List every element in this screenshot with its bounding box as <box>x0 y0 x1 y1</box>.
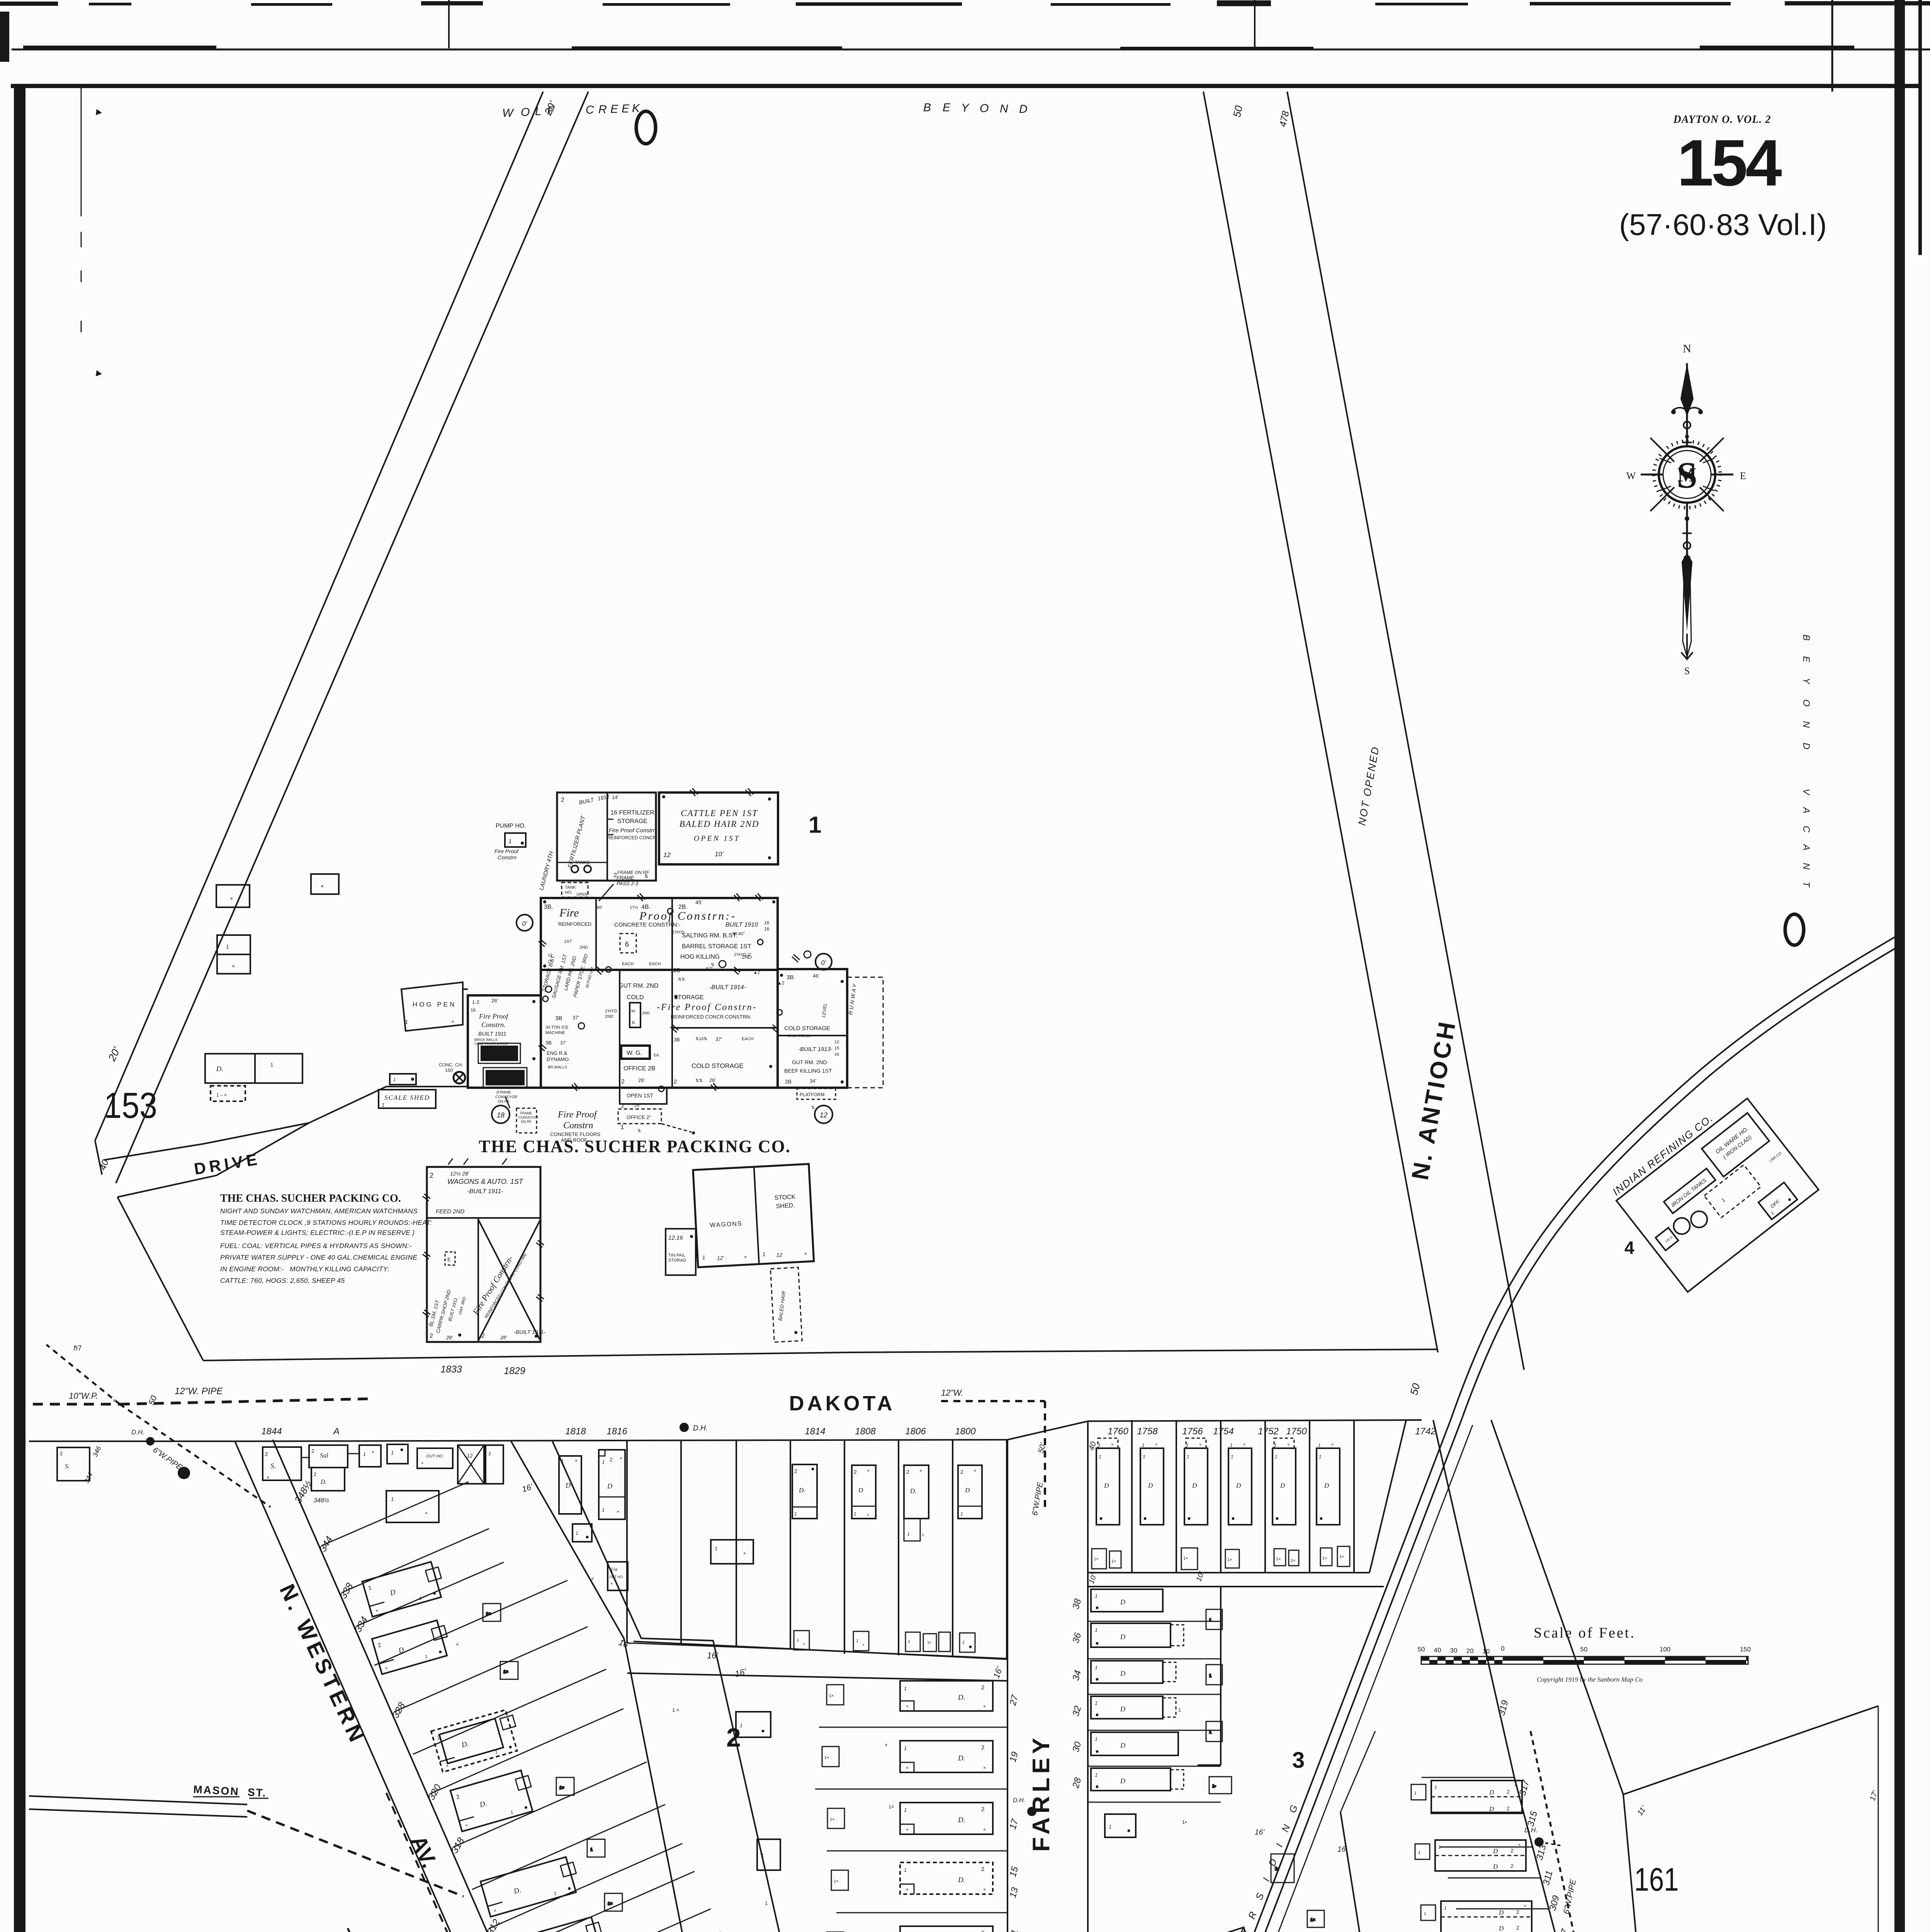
svg-text:2: 2 <box>314 1471 316 1477</box>
svg-text:D.: D. <box>958 1754 965 1762</box>
svg-text:1•: 1• <box>1212 1784 1216 1789</box>
svg-text:(57·60·83 Vol.I): (57·60·83 Vol.I) <box>1619 207 1827 241</box>
svg-text:O: O <box>521 106 530 119</box>
svg-text:ON RF.: ON RF. <box>498 1100 510 1104</box>
svg-text:D.: D. <box>910 1487 917 1495</box>
svg-text:1: 1 <box>1178 1707 1181 1713</box>
svg-text:1: 1 <box>1095 1627 1098 1633</box>
svg-text:3B.60°: 3B.60° <box>732 932 745 936</box>
svg-text:10”W.P.: 10”W.P. <box>69 1391 98 1401</box>
svg-text:46’: 46’ <box>813 973 819 979</box>
svg-text:1818: 1818 <box>565 1426 586 1437</box>
svg-text:2'HYD: 2'HYD <box>605 1009 617 1014</box>
svg-text:E: E <box>447 1257 451 1262</box>
svg-text:1758: 1758 <box>1137 1426 1158 1437</box>
svg-text:W: W <box>502 107 514 119</box>
svg-text:1×: 1× <box>559 1786 564 1790</box>
svg-text:CONVEYOR: CONVEYOR <box>518 1116 539 1119</box>
svg-text:2’HYD.2°: 2’HYD.2° <box>734 952 751 957</box>
svg-text:PUMP HO.: PUMP HO. <box>496 823 526 829</box>
svg-text:BEEF KILLING 1ST: BEEF KILLING 1ST <box>784 1068 832 1074</box>
svg-text:12: 12 <box>548 953 552 957</box>
svg-text:×: × <box>922 1533 924 1537</box>
svg-text:1806: 1806 <box>905 1426 926 1437</box>
svg-text:0’: 0’ <box>821 959 826 966</box>
svg-text:ENG R.&: ENG R.& <box>547 1050 567 1056</box>
svg-text:1: 1 <box>904 1745 907 1751</box>
svg-text:V: V <box>1801 789 1811 796</box>
svg-text:ON RF.: ON RF. <box>521 1120 532 1124</box>
svg-text:1: 1 <box>1143 1454 1145 1459</box>
svg-text:E: E <box>610 103 618 116</box>
svg-text:2: 2 <box>981 1684 984 1691</box>
svg-text:17½: 17½ <box>630 905 638 910</box>
svg-text:1: 1 <box>590 1847 593 1852</box>
svg-text:GUT RM. 2ND: GUT RM. 2ND <box>618 983 659 989</box>
svg-text:D.: D. <box>958 1876 965 1884</box>
svg-text:3B: 3B <box>555 1015 562 1022</box>
svg-text:W. G.: W. G. <box>627 1050 642 1056</box>
svg-text:BARREL STORAGE 1ST: BARREL STORAGE 1ST <box>682 943 751 950</box>
svg-text:D: D <box>858 1486 863 1494</box>
svg-text:50: 50 <box>1231 105 1245 119</box>
svg-text:B: B <box>923 101 931 114</box>
svg-text:×: × <box>456 1641 459 1647</box>
svg-text:1: 1 <box>1095 1736 1098 1742</box>
svg-text:FARLEY: FARLEY <box>1028 1734 1055 1852</box>
svg-text:2: 2 <box>610 1456 613 1463</box>
svg-text:×: × <box>906 1704 909 1709</box>
svg-text:26’: 26’ <box>709 1077 716 1083</box>
svg-text:×: × <box>1199 1442 1201 1447</box>
svg-text:2ND: 2ND <box>579 945 588 950</box>
svg-text:12: 12 <box>467 1452 473 1459</box>
svg-text:BUILT 1910: BUILT 1910 <box>725 922 758 928</box>
svg-text:N: N <box>1801 721 1811 728</box>
svg-text:⇅16⇅: ⇅16⇅ <box>695 1037 707 1041</box>
svg-text:16’: 16’ <box>707 1651 719 1660</box>
svg-text:TIN PAIL: TIN PAIL <box>668 1253 685 1258</box>
svg-text:OPEN: OPEN <box>576 893 587 897</box>
svg-text:1: 1 <box>576 1531 578 1536</box>
svg-text:Constrn: Constrn <box>563 1121 593 1131</box>
svg-text:E: E <box>1801 656 1811 663</box>
svg-text:⇅: ⇅ <box>811 1105 815 1110</box>
svg-text:×: × <box>1243 1442 1245 1447</box>
svg-text:D: D <box>965 1486 970 1494</box>
svg-text:16: 16 <box>764 920 770 925</box>
svg-text:×: × <box>1111 1442 1113 1447</box>
svg-text:×: × <box>867 1513 869 1517</box>
svg-text:E: E <box>943 101 951 114</box>
svg-text:1×: 1× <box>1310 1918 1315 1922</box>
svg-text:1×: 1× <box>1276 1557 1281 1561</box>
svg-text:×: × <box>885 1742 888 1748</box>
svg-text:2: 2 <box>430 1333 433 1339</box>
svg-text:D: D <box>1493 1863 1498 1870</box>
svg-text:1×: 1× <box>1111 1559 1116 1564</box>
svg-text:1: 1 <box>856 1639 858 1643</box>
svg-text:EA.: EA. <box>654 1053 660 1058</box>
svg-text:▲2: ▲2 <box>753 970 760 975</box>
svg-text:16’: 16’ <box>1255 1828 1265 1837</box>
svg-text:1×: 1× <box>486 1612 491 1616</box>
svg-text:×: × <box>451 1019 454 1024</box>
svg-text:2: 2 <box>854 1469 857 1475</box>
svg-text:12: 12 <box>776 1252 783 1258</box>
svg-text:16: 16 <box>764 926 770 932</box>
svg-text:1: 1 <box>1318 1442 1321 1448</box>
svg-text:2ND: 2ND <box>605 1014 613 1019</box>
svg-text:D: D <box>1498 1925 1504 1932</box>
svg-text:1×: 1× <box>889 1804 894 1810</box>
svg-text:S.: S. <box>270 1462 276 1470</box>
svg-text:CATTLE PEN 1ST: CATTLE PEN 1ST <box>681 808 758 818</box>
svg-text:14’: 14’ <box>612 794 618 800</box>
svg-text:37’: 37’ <box>573 1015 579 1020</box>
svg-text:1: 1 <box>1095 1772 1098 1778</box>
svg-text:3B.: 3B. <box>787 974 795 981</box>
svg-text:1816: 1816 <box>607 1426 627 1437</box>
svg-text:COLD STORAGE: COLD STORAGE <box>691 1062 744 1070</box>
svg-text:THE CHAS. SUCHER PACKING CO.: THE CHAS. SUCHER PACKING CO. <box>220 1192 401 1204</box>
svg-text:Fire Proof: Fire Proof <box>494 848 519 854</box>
svg-text:D: D <box>1493 1847 1498 1855</box>
svg-text:12: 12 <box>820 1111 827 1119</box>
svg-text:REINFORCED CONCR.CONSTRN.: REINFORCED CONCR.CONSTRN. <box>671 1014 751 1020</box>
svg-text:2: 2 <box>621 1102 624 1109</box>
svg-text:Fire Proof: Fire Proof <box>557 1110 598 1120</box>
svg-text:2'HYD: 2'HYD <box>672 930 684 935</box>
svg-text:2: 2 <box>1510 1847 1514 1854</box>
svg-text:BR.WALLS: BR.WALLS <box>548 1065 567 1070</box>
svg-text:1: 1 <box>797 1638 799 1643</box>
svg-text:×: × <box>744 1254 747 1260</box>
svg-text:153: 153 <box>104 1085 157 1126</box>
svg-text:×: × <box>575 1458 578 1463</box>
svg-text:34’: 34’ <box>810 1078 816 1084</box>
svg-text:×: × <box>230 895 233 901</box>
svg-text:16 FERTILIZER: 16 FERTILIZER <box>610 810 654 816</box>
svg-text:D: D <box>1236 1482 1241 1489</box>
svg-text:Fire: Fire <box>559 906 579 919</box>
svg-text:×: × <box>1287 1442 1289 1447</box>
svg-text:-Fire Proof Constrn-: -Fire Proof Constrn- <box>657 1002 757 1012</box>
svg-text:WAGONS & AUTO. 1ST: WAGONS & AUTO. 1ST <box>447 1178 524 1185</box>
svg-text:0: 0 <box>1501 1645 1504 1652</box>
svg-text:50: 50 <box>1580 1646 1588 1653</box>
svg-text:1750: 1750 <box>1286 1426 1307 1437</box>
svg-text:T: T <box>1801 881 1811 888</box>
svg-text:A: A <box>333 1426 340 1437</box>
svg-text:2: 2 <box>1510 1863 1514 1869</box>
svg-text:D: D <box>1192 1482 1197 1489</box>
svg-text:×: × <box>1331 1442 1334 1447</box>
svg-text:2: 2 <box>430 1172 433 1179</box>
svg-text:↑26’: ↑26’ <box>632 1102 641 1108</box>
svg-text:N: N <box>1683 342 1691 355</box>
svg-text:1: 1 <box>1231 1454 1233 1459</box>
svg-text:E: E <box>1740 470 1746 481</box>
svg-text:×: × <box>1155 1442 1157 1447</box>
svg-text:×: × <box>1518 1843 1521 1847</box>
svg-text:150’: 150’ <box>445 1068 454 1073</box>
svg-text:1: 1 <box>1434 1785 1437 1790</box>
svg-text:×: × <box>906 1887 909 1892</box>
svg-text:⇅⇅: ⇅⇅ <box>678 977 685 982</box>
svg-text:30 TON ICE: 30 TON ICE <box>545 1025 569 1030</box>
svg-text:NIGHT AND SUNDAY WATCHMAN, AME: NIGHT AND SUNDAY WATCHMAN, AMERICAN WATC… <box>220 1207 418 1215</box>
svg-text:1×: 1× <box>927 1641 932 1645</box>
svg-text:D: D <box>1489 1805 1494 1813</box>
svg-text:2: 2 <box>1507 1789 1510 1795</box>
svg-text:1: 1 <box>1274 1442 1277 1448</box>
svg-text:1 ×: 1 × <box>672 1707 679 1713</box>
svg-text:1×: 1× <box>503 1670 508 1674</box>
svg-text:C: C <box>1801 826 1811 833</box>
svg-text:4: 4 <box>1624 1238 1634 1258</box>
svg-text:-BUILT 1911-: -BUILT 1911- <box>514 1329 545 1335</box>
svg-text:Constrn: Constrn <box>498 854 516 861</box>
svg-text:12: 12 <box>834 1040 839 1044</box>
svg-text:×: × <box>867 1468 870 1473</box>
svg-text:×: × <box>919 1468 922 1473</box>
svg-text:HOG PEN: HOG PEN <box>413 1001 456 1008</box>
svg-text:D: D <box>1148 1482 1153 1489</box>
svg-text:12: 12 <box>663 851 671 859</box>
svg-text:×: × <box>321 883 324 889</box>
svg-text:Copyright 1919 by the Sanborn: Copyright 1919 by the Sanborn Map Co <box>1537 1676 1643 1683</box>
svg-text:66': 66' <box>597 905 602 910</box>
svg-text:12’: 12’ <box>717 1255 725 1261</box>
svg-text:STORAGE: STORAGE <box>674 994 704 1001</box>
svg-text:1: 1 <box>960 1511 963 1517</box>
svg-text:CATTLE: 760, HOGS: 2,650, SHEE: CATTLE: 760, HOGS: 2,650, SHEEP 45 <box>220 1277 345 1284</box>
svg-text:×: × <box>906 1827 909 1832</box>
svg-text:COLD: COLD <box>627 994 644 1001</box>
svg-text:1: 1 <box>809 812 821 838</box>
svg-text:1: 1 <box>1418 1850 1420 1855</box>
svg-text:1: 1 <box>1444 1905 1447 1911</box>
svg-text:26’: 26’ <box>638 1077 645 1083</box>
svg-text:×: × <box>862 1643 865 1647</box>
svg-text:1: 1 <box>270 1062 273 1068</box>
svg-text:SCALE SHED: SCALE SHED <box>384 1094 430 1101</box>
svg-text:1: 1 <box>1142 1442 1145 1448</box>
svg-text:1×: 1× <box>1291 1558 1296 1563</box>
svg-text:2: 2 <box>265 1451 268 1457</box>
svg-text:OPEN 1ST: OPEN 1ST <box>627 1092 654 1099</box>
svg-text:1: 1 <box>740 1723 742 1728</box>
svg-text:1: 1 <box>1275 1454 1278 1459</box>
svg-text:1742: 1742 <box>1415 1426 1436 1437</box>
svg-text:R: R <box>598 103 607 116</box>
svg-text:16: 16 <box>471 1007 476 1013</box>
svg-text:STORAG: STORAG <box>668 1258 686 1263</box>
svg-text:PRIVATE WATER SUPPLY - ONE 40: PRIVATE WATER SUPPLY - ONE 40 GAL.CHEMIC… <box>220 1253 417 1261</box>
svg-text:1: 1 <box>794 1511 797 1517</box>
svg-text:Sal: Sal <box>320 1452 328 1459</box>
svg-text:MACHINE: MACHINE <box>545 1031 565 1035</box>
svg-text:1: 1 <box>962 1640 965 1645</box>
svg-text:37’: 37’ <box>560 1040 566 1046</box>
svg-text:3B.: 3B. <box>544 904 553 910</box>
svg-text:18: 18 <box>497 1111 505 1119</box>
svg-text:1833: 1833 <box>440 1364 462 1375</box>
svg-text:D: D <box>1120 1777 1125 1785</box>
svg-text:2: 2 <box>60 1451 63 1456</box>
svg-text:1: 1 <box>1099 1454 1101 1459</box>
svg-text:GUT RM. 2ND: GUT RM. 2ND <box>792 1059 827 1065</box>
svg-text:1×: 1× <box>1339 1554 1344 1559</box>
svg-text:D: D <box>1324 1482 1329 1489</box>
svg-text:×: × <box>1514 1783 1517 1788</box>
svg-text:Y: Y <box>961 102 970 114</box>
svg-text:1: 1 <box>488 1451 491 1456</box>
svg-text:1: 1 <box>715 1546 717 1551</box>
svg-text:D.H.: D.H. <box>131 1429 144 1436</box>
svg-text:DYNAMO.: DYNAMO. <box>547 1056 570 1062</box>
svg-text:10: 10 <box>1483 1648 1490 1655</box>
svg-text:Fire Proof: Fire Proof <box>479 1012 509 1020</box>
svg-text:1: 1 <box>393 1077 396 1082</box>
svg-text:D: D <box>1498 1909 1504 1916</box>
svg-text:1•: 1• <box>1182 1819 1187 1825</box>
svg-text:1: 1 <box>602 1507 605 1513</box>
svg-text:10’: 10’ <box>715 850 724 858</box>
svg-text:15: 15 <box>834 1046 839 1051</box>
svg-text:12”W.: 12”W. <box>941 1388 963 1398</box>
svg-text:1: 1 <box>508 838 511 845</box>
svg-text:OFFICE 2°: OFFICE 2° <box>627 1114 651 1120</box>
svg-text:1×: 1× <box>830 1817 835 1822</box>
svg-text:D: D <box>1120 1670 1125 1677</box>
svg-text:2: 2 <box>621 1078 625 1085</box>
svg-text:×: × <box>803 1642 805 1646</box>
svg-text:1: 1 <box>907 1531 910 1537</box>
svg-text:1829: 1829 <box>504 1366 525 1376</box>
svg-text:D.H.: D.H. <box>1524 1827 1538 1834</box>
svg-text:COLD STORAGE: COLD STORAGE <box>784 1025 830 1032</box>
svg-text:-BUILT 1911-: -BUILT 1911- <box>467 1188 503 1195</box>
svg-text:1: 1 <box>382 1102 384 1108</box>
svg-text:1808: 1808 <box>855 1426 876 1437</box>
svg-text:OPEN 1ST: OPEN 1ST <box>694 834 740 843</box>
svg-text:1: 1 <box>762 1251 766 1257</box>
svg-text:1: 1 <box>226 944 229 950</box>
svg-text:1•: 1• <box>1275 1866 1279 1871</box>
svg-text:HOG KILLING: HOG KILLING <box>680 954 720 960</box>
svg-text:12”W. PIPE: 12”W. PIPE <box>175 1386 223 1396</box>
svg-text:Y: Y <box>1801 678 1811 685</box>
svg-text:CONCRETE CONSTRN:-: CONCRETE CONSTRN:- <box>614 922 681 928</box>
svg-text:PLATFORM: PLATFORM <box>800 1092 824 1097</box>
svg-text:12,16: 12,16 <box>668 1235 683 1241</box>
svg-text:12½ 28’: 12½ 28’ <box>450 1170 470 1177</box>
svg-text:0’: 0’ <box>522 920 527 927</box>
svg-text:1754: 1754 <box>1213 1426 1233 1437</box>
svg-text:1×: 1× <box>834 1879 839 1884</box>
svg-text:20: 20 <box>1466 1647 1474 1655</box>
svg-text:⇅: ⇅ <box>644 874 648 879</box>
svg-text:1: 1 <box>1187 1454 1189 1459</box>
svg-text:×: × <box>906 1765 909 1770</box>
svg-text:THE CHAS. SUCHER PACKING CO.: THE CHAS. SUCHER PACKING CO. <box>479 1137 791 1156</box>
svg-text:1: 1 <box>391 1496 394 1502</box>
svg-text:2: 2 <box>1507 1805 1510 1811</box>
svg-text:A: A <box>1801 806 1811 813</box>
svg-text:×: × <box>983 1887 986 1892</box>
svg-text:348½: 348½ <box>314 1497 329 1504</box>
svg-text:1·2: 1·2 <box>472 999 479 1005</box>
svg-text:×: × <box>983 1827 986 1832</box>
svg-text:⇅: ⇅ <box>637 1129 641 1133</box>
svg-text:STORAGE: STORAGE <box>617 818 647 825</box>
svg-text:BALED HAIR 2ND: BALED HAIR 2ND <box>680 819 759 829</box>
svg-text:2: 2 <box>311 1448 314 1454</box>
svg-text:1: 1 <box>1109 1824 1111 1830</box>
svg-text:STEAM-POWER & LIGHTS; ELECTRIC: STEAM-POWER & LIGHTS; ELECTRIC:-(I.E.P I… <box>220 1229 415 1236</box>
svg-text:1760: 1760 <box>1108 1426 1128 1437</box>
svg-text:16: 16 <box>834 1052 839 1057</box>
svg-text:S.: S. <box>65 1463 70 1470</box>
svg-text:150: 150 <box>1740 1646 1751 1653</box>
svg-text:Scale of Feet.: Scale of Feet. <box>1534 1625 1636 1641</box>
svg-text:1814: 1814 <box>805 1426 825 1437</box>
svg-text:EACH: EACH <box>649 962 661 966</box>
svg-text:D.H.: D.H. <box>1013 1797 1025 1804</box>
svg-text:2B: 2B <box>673 967 680 974</box>
svg-text:D: D <box>1280 1482 1285 1489</box>
svg-text:1800: 1800 <box>955 1426 976 1437</box>
svg-text:1: 1 <box>1319 1454 1322 1459</box>
svg-text:×: × <box>610 1582 613 1586</box>
svg-text:(FRAME: (FRAME <box>496 1090 511 1095</box>
svg-text:30: 30 <box>1450 1647 1458 1654</box>
svg-text:D: D <box>1801 743 1811 749</box>
svg-text:Constrn.: Constrn. <box>481 1021 506 1029</box>
svg-text:BUILT 1911: BUILT 1911 <box>478 1031 506 1037</box>
svg-text:1752: 1752 <box>1258 1426 1278 1437</box>
svg-text:×: × <box>983 1704 986 1709</box>
svg-text:×: × <box>372 1449 374 1455</box>
svg-text:1: 1 <box>908 1639 910 1644</box>
svg-text:SHED.: SHED. <box>776 1202 795 1210</box>
svg-text:E: E <box>622 102 630 115</box>
svg-text:EACH: EACH <box>622 962 634 966</box>
svg-text:3: 3 <box>1292 1748 1305 1773</box>
svg-text:2: 2 <box>561 797 564 803</box>
svg-text:40: 40 <box>1434 1646 1441 1654</box>
svg-text:1: 1 <box>854 1511 856 1517</box>
svg-text:OFFICE 2B: OFFICE 2B <box>624 1065 656 1072</box>
svg-text:TIME DETECTOR CLOCK ,9 STATION: TIME DETECTOR CLOCK ,9 STATIONS HOURLY R… <box>220 1219 432 1226</box>
svg-text:2: 2 <box>481 1333 485 1339</box>
svg-text:×: × <box>232 963 235 969</box>
svg-text:D: D <box>1120 1633 1125 1641</box>
svg-text:1: 1 <box>363 1451 366 1457</box>
svg-text:2: 2 <box>981 1866 984 1872</box>
svg-text:FUEL: COAL: VERTICAL PIPES & H: FUEL: COAL: VERTICAL PIPES & HYDRANTS AS… <box>220 1242 411 1250</box>
svg-text:D.: D. <box>958 1816 965 1824</box>
svg-text:B.: B. <box>632 1021 635 1025</box>
svg-text:EACH 5 EACH: EACH 5 EACH <box>788 1034 811 1038</box>
svg-text:A: A <box>1801 844 1811 850</box>
svg-text:Proof Constrn:-: Proof Constrn:- <box>639 910 736 922</box>
svg-text:⇅⇅: ⇅⇅ <box>695 1078 702 1083</box>
svg-text:⇅: ⇅ <box>711 963 714 967</box>
svg-text:3B: 3B <box>674 1037 680 1043</box>
